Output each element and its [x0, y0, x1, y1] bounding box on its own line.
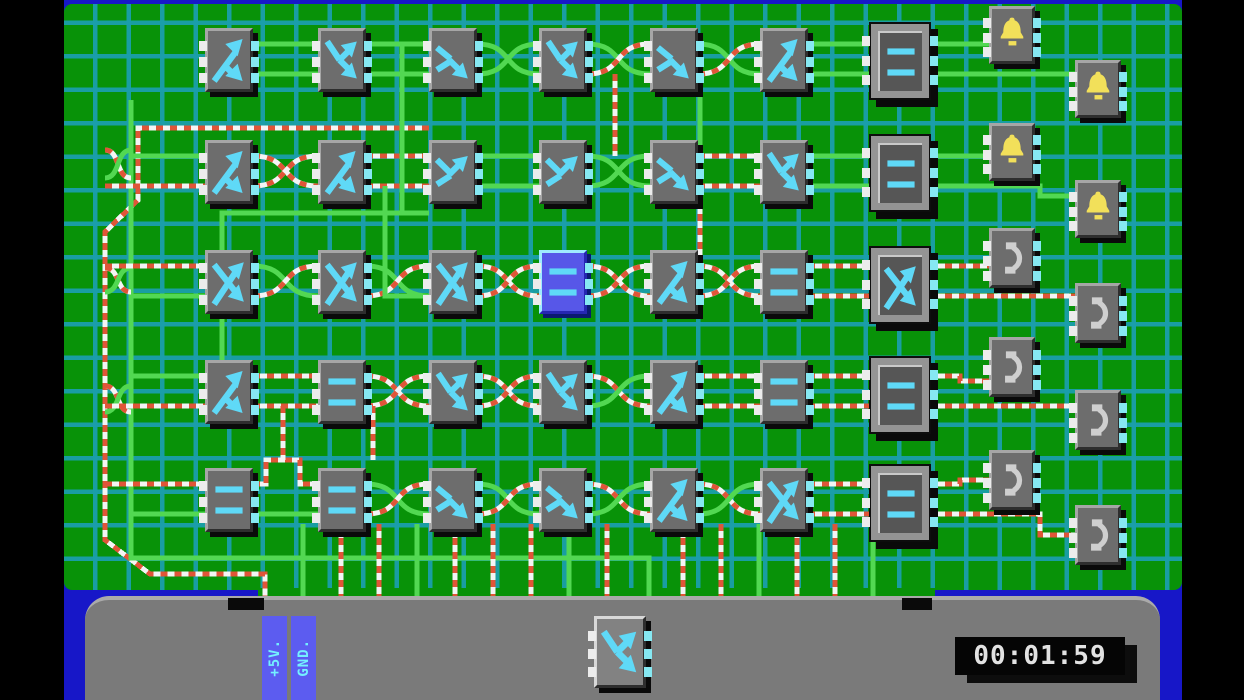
chip-pin-left	[644, 153, 652, 163]
chip-pin-right	[930, 187, 938, 197]
chip-pin-left	[862, 280, 870, 290]
chip-pin-right	[251, 405, 259, 415]
logic-chip[interactable]	[539, 140, 587, 204]
chip-pin-left	[644, 169, 652, 179]
chip-pin-left	[423, 279, 431, 289]
chip-pin-left	[533, 513, 541, 523]
merge-down-icon	[432, 31, 474, 89]
chip-pin-left	[862, 498, 870, 508]
chip-pin-left	[588, 631, 596, 641]
capacitor-chip[interactable]	[760, 360, 808, 424]
chip-pin-left	[1069, 326, 1077, 336]
capacitor-icon	[880, 367, 922, 425]
chip-pin-right	[806, 389, 814, 399]
chip-pin-left	[312, 295, 320, 305]
chip-pin-right	[930, 498, 938, 508]
chip-pin-left	[533, 497, 541, 507]
cross-over-icon	[208, 253, 250, 311]
chip-pin-left	[312, 279, 320, 289]
chip-pin-left	[423, 481, 431, 491]
chip-pin-right	[364, 153, 372, 163]
chip-pin-right	[475, 153, 483, 163]
chip-pin-right	[930, 517, 938, 527]
chip-pin-right	[1119, 207, 1127, 217]
chip-pin-left	[533, 41, 541, 51]
chip-pin-left	[423, 373, 431, 383]
chip-pin-left	[312, 169, 320, 179]
chip-pin-right	[251, 497, 259, 507]
chip-pin-left	[199, 185, 207, 195]
phone-chip[interactable]	[1075, 505, 1121, 565]
logic-chip[interactable]	[760, 468, 808, 532]
chip-pin-left	[754, 57, 762, 67]
chip-pin-left	[312, 41, 320, 51]
chip-pin-right	[585, 41, 593, 51]
chip-pin-right	[585, 73, 593, 83]
timer-value: 00:01:59	[973, 641, 1106, 671]
chip-pin-left	[423, 169, 431, 179]
chip-pin-left	[862, 148, 870, 158]
chip-pin-right	[696, 481, 704, 491]
chip-pin-left	[533, 405, 541, 415]
chip-pin-right	[475, 279, 483, 289]
chip-pin-left	[199, 373, 207, 383]
capacitor-icon	[321, 471, 363, 529]
capacitor-chip-large[interactable]	[869, 356, 931, 434]
chip-pin-left	[983, 493, 991, 503]
chip-pin-right	[806, 169, 814, 179]
chip-pin-right	[806, 185, 814, 195]
chip-pin-right	[930, 260, 938, 270]
chip-pin-right	[251, 513, 259, 523]
chip-pin-right	[644, 649, 652, 659]
chip-pin-left	[423, 153, 431, 163]
logic-chip[interactable]	[650, 250, 698, 314]
chip-pin-left	[862, 517, 870, 527]
chip-pin-right	[364, 373, 372, 383]
chip-pin-right	[696, 57, 704, 67]
bell-icon	[992, 126, 1032, 178]
chip-pin-right	[364, 279, 372, 289]
chip-pin-left	[199, 481, 207, 491]
chip-pin-right	[585, 497, 593, 507]
chip-pin-right	[364, 405, 372, 415]
chip-pin-right	[930, 299, 938, 309]
chip-pin-right	[1033, 478, 1041, 488]
chip-pin-left	[1069, 403, 1077, 413]
chip-pin-right	[1033, 164, 1041, 174]
chip-pin-right	[1119, 548, 1127, 558]
chip-pin-left	[1069, 418, 1077, 428]
chip-pin-left	[423, 57, 431, 67]
splitter-up-icon	[763, 31, 805, 89]
chip-pin-left	[1069, 548, 1077, 558]
chip-pin-left	[199, 279, 207, 289]
chip-pin-right	[251, 263, 259, 273]
logic-chip[interactable]	[429, 28, 477, 92]
chip-pin-left	[644, 513, 652, 523]
chip-pin-right	[1033, 463, 1041, 473]
chip-pin-right	[1033, 241, 1041, 251]
chip-pin-left	[423, 513, 431, 523]
bell-chip[interactable]	[989, 6, 1035, 64]
chip-pin-right	[585, 153, 593, 163]
chip-pin-left	[1069, 72, 1077, 82]
logic-chip[interactable]	[539, 360, 587, 424]
chip-pin-right	[364, 513, 372, 523]
splitter-down-icon	[542, 363, 584, 421]
timer-display: 00:01:59	[955, 637, 1125, 675]
splitter-down-icon	[597, 619, 643, 685]
chip-pin-right	[806, 513, 814, 523]
chip-pin-left	[533, 169, 541, 179]
chip-pin-right	[696, 295, 704, 305]
capacitor-icon	[321, 363, 363, 421]
chip-pin-right	[696, 153, 704, 163]
logic-chip[interactable]	[429, 250, 477, 314]
chip-pin-left	[533, 481, 541, 491]
chip-pin-left	[199, 263, 207, 273]
chip-pin-left	[199, 295, 207, 305]
capacitor-icon	[763, 253, 805, 311]
phone-chip[interactable]	[989, 337, 1035, 397]
chip-pin-right	[930, 56, 938, 66]
chip-pin-left	[588, 667, 596, 677]
chip-pin-left	[754, 373, 762, 383]
chip-pin-left	[644, 389, 652, 399]
capacitor-chip[interactable]	[205, 468, 253, 532]
chip-pin-right	[806, 295, 814, 305]
chip-pin-right	[1119, 418, 1127, 428]
chip-pin-right	[1033, 33, 1041, 43]
splitter-down-icon	[763, 143, 805, 201]
capacitor-chip[interactable]	[318, 468, 366, 532]
chip-pin-left	[754, 513, 762, 523]
phone-icon	[992, 340, 1032, 394]
chip-pin-right	[364, 41, 372, 51]
chip-pin-left	[862, 299, 870, 309]
chip-pin-left	[533, 263, 541, 273]
logic-chip[interactable]	[650, 360, 698, 424]
capacitor-icon	[208, 471, 250, 529]
chip-pin-left	[199, 497, 207, 507]
logic-chip[interactable]	[205, 140, 253, 204]
capacitor-chip[interactable]	[760, 250, 808, 314]
chip-pin-left	[754, 405, 762, 415]
chip-pin-right	[1033, 47, 1041, 57]
chip-inner-panel	[878, 31, 922, 91]
chip-pin-right	[475, 73, 483, 83]
capacitor-chip-large[interactable]	[869, 464, 931, 542]
chip-pin-left	[423, 389, 431, 399]
chip-pin-left	[423, 73, 431, 83]
chip-pin-right	[364, 295, 372, 305]
chip-pin-right	[806, 481, 814, 491]
chip-pin-left	[862, 75, 870, 85]
chip-pin-left	[1069, 207, 1077, 217]
chip-pin-right	[806, 263, 814, 273]
chip-pin-left	[312, 185, 320, 195]
chip-pin-left	[312, 497, 320, 507]
logic-chip[interactable]	[429, 468, 477, 532]
chip-pin-right	[364, 73, 372, 83]
chip-pin-right	[930, 75, 938, 85]
bell-chip[interactable]	[1075, 60, 1121, 118]
cross-over-chip-large[interactable]	[869, 246, 931, 324]
chip-pin-right	[251, 389, 259, 399]
chip-pin-right	[251, 169, 259, 179]
phone-icon	[1078, 393, 1118, 447]
chip-pin-left	[983, 18, 991, 28]
chip-pin-left	[1069, 296, 1077, 306]
game-screen: +5V. GND. 00:01:59	[0, 0, 1244, 700]
chip-pin-left	[862, 187, 870, 197]
chip-pin-left	[754, 279, 762, 289]
merge-up-icon	[542, 143, 584, 201]
chip-pin-right	[930, 390, 938, 400]
chip-pin-right	[696, 263, 704, 273]
merge-up-icon	[432, 143, 474, 201]
chip-pin-left	[644, 295, 652, 305]
chip-pin-right	[364, 57, 372, 67]
chip-pin-right	[696, 513, 704, 523]
chip-pin-left	[312, 373, 320, 383]
chip-pin-right	[1119, 296, 1127, 306]
chip-pin-right	[696, 73, 704, 83]
chip-pin-left	[199, 405, 207, 415]
chip-pin-right	[1119, 326, 1127, 336]
chip-pin-right	[1033, 150, 1041, 160]
phone-icon	[992, 231, 1032, 285]
logic-chip[interactable]	[429, 140, 477, 204]
chip-pin-left	[644, 373, 652, 383]
chip-pin-left	[754, 389, 762, 399]
logic-chip[interactable]	[429, 360, 477, 424]
chip-pin-left	[1069, 87, 1077, 97]
chip-pin-left	[533, 279, 541, 289]
next-chip[interactable]	[594, 616, 646, 688]
bell-chip[interactable]	[1075, 180, 1121, 238]
chip-pin-right	[1033, 271, 1041, 281]
chip-pin-left	[754, 73, 762, 83]
logic-chip[interactable]	[650, 28, 698, 92]
cross-over-icon	[432, 253, 474, 311]
chip-pin-left	[312, 153, 320, 163]
chip-pin-right	[475, 497, 483, 507]
splitter-up-icon	[653, 471, 695, 529]
chip-pin-left	[862, 36, 870, 46]
capacitor-icon	[880, 33, 922, 91]
logic-chip[interactable]	[650, 468, 698, 532]
logic-chip[interactable]	[205, 250, 253, 314]
capacitor-chip-large[interactable]	[869, 134, 931, 212]
chip-pin-left	[533, 389, 541, 399]
chip-pin-left	[862, 409, 870, 419]
logic-chip[interactable]	[318, 140, 366, 204]
phone-icon	[992, 453, 1032, 507]
cross-over-icon	[880, 257, 922, 315]
capacitor-chip[interactable]	[318, 360, 366, 424]
chip-pin-left	[533, 185, 541, 195]
bell-chip[interactable]	[989, 123, 1035, 181]
chip-pin-right	[1119, 433, 1127, 443]
capacitor-chip-large[interactable]	[869, 22, 931, 100]
chip-pin-left	[199, 169, 207, 179]
bell-icon	[1078, 183, 1118, 235]
chip-pin-right	[930, 409, 938, 419]
chip-pin-right	[251, 279, 259, 289]
chip-pin-left	[983, 271, 991, 281]
logic-chip[interactable]	[760, 28, 808, 92]
chip-pin-left	[983, 135, 991, 145]
power-rail-gnd-label: GND.	[296, 639, 312, 677]
chip-pin-right	[364, 481, 372, 491]
chip-pin-right	[364, 497, 372, 507]
chip-inner-panel	[878, 473, 922, 533]
chip-inner-panel	[878, 255, 922, 315]
chip-pin-left	[644, 57, 652, 67]
chip-pin-right	[475, 41, 483, 51]
chip-pin-right	[1119, 192, 1127, 202]
chip-pin-right	[696, 41, 704, 51]
tray-notch-right	[902, 598, 932, 610]
chip-pin-left	[754, 41, 762, 51]
chip-pin-right	[1033, 380, 1041, 390]
chip-pin-left	[199, 389, 207, 399]
selected-chip[interactable]	[539, 250, 587, 314]
chip-pin-right	[251, 153, 259, 163]
chip-pin-left	[983, 33, 991, 43]
chip-pin-left	[644, 73, 652, 83]
chip-pin-right	[1119, 533, 1127, 543]
chip-pin-left	[862, 168, 870, 178]
phone-chip[interactable]	[989, 228, 1035, 288]
chip-pin-right	[585, 169, 593, 179]
chip-pin-right	[930, 370, 938, 380]
power-rail-5v: +5V.	[262, 616, 287, 700]
power-rail-gnd: GND.	[291, 616, 316, 700]
chip-pin-right	[585, 295, 593, 305]
chip-pin-right	[585, 389, 593, 399]
chip-pin-left	[983, 150, 991, 160]
chip-pin-left	[1069, 101, 1077, 111]
chip-pin-left	[423, 405, 431, 415]
chip-pin-right	[696, 169, 704, 179]
phone-chip[interactable]	[1075, 283, 1121, 343]
chip-pin-right	[585, 481, 593, 491]
chip-pin-left	[983, 478, 991, 488]
logic-chip[interactable]	[205, 28, 253, 92]
chip-pin-right	[1119, 311, 1127, 321]
chip-pin-right	[585, 513, 593, 523]
chip-pin-right	[1033, 256, 1041, 266]
chip-pin-left	[199, 153, 207, 163]
chip-pin-left	[423, 185, 431, 195]
chip-pin-right	[251, 373, 259, 383]
chip-pin-right	[696, 279, 704, 289]
chip-pin-right	[696, 497, 704, 507]
logic-chip[interactable]	[539, 28, 587, 92]
chip-pin-left	[533, 73, 541, 83]
chip-pin-left	[312, 389, 320, 399]
chip-pin-left	[754, 153, 762, 163]
chip-pin-left	[312, 73, 320, 83]
phone-chip[interactable]	[989, 450, 1035, 510]
chip-pin-left	[588, 649, 596, 659]
chip-pin-right	[644, 667, 652, 677]
chip-pin-left	[862, 260, 870, 270]
chip-pin-right	[806, 153, 814, 163]
chip-pin-right	[644, 631, 652, 641]
splitter-up-icon	[208, 31, 250, 89]
chip-pin-left	[754, 263, 762, 273]
chip-pin-left	[533, 373, 541, 383]
chip-pin-left	[644, 185, 652, 195]
chip-pin-right	[806, 57, 814, 67]
chip-pin-right	[806, 497, 814, 507]
chip-pin-right	[585, 279, 593, 289]
logic-chip[interactable]	[760, 140, 808, 204]
chip-inner-panel	[878, 365, 922, 425]
chip-inner-panel	[878, 143, 922, 203]
chip-pin-left	[1069, 518, 1077, 528]
chip-pin-right	[475, 263, 483, 273]
splitter-up-icon	[653, 363, 695, 421]
chip-pin-right	[1033, 365, 1041, 375]
chip-pin-right	[806, 41, 814, 51]
chip-pin-right	[696, 185, 704, 195]
logic-chip[interactable]	[650, 140, 698, 204]
chip-pin-right	[475, 481, 483, 491]
chip-pin-right	[475, 373, 483, 383]
capacitor-icon	[542, 253, 584, 311]
logic-chip[interactable]	[539, 468, 587, 532]
chip-pin-left	[423, 41, 431, 51]
splitter-down-icon	[321, 31, 363, 89]
chip-pin-left	[1069, 533, 1077, 543]
splitter-down-icon	[432, 363, 474, 421]
chip-pin-left	[312, 513, 320, 523]
logic-chip[interactable]	[205, 360, 253, 424]
phone-icon	[1078, 286, 1118, 340]
chip-pin-right	[1033, 493, 1041, 503]
capacitor-icon	[880, 475, 922, 533]
chip-pin-right	[475, 169, 483, 179]
chip-pin-left	[754, 481, 762, 491]
chip-pin-left	[983, 164, 991, 174]
chip-pin-right	[696, 373, 704, 383]
logic-chip[interactable]	[318, 250, 366, 314]
chip-pin-right	[585, 263, 593, 273]
chip-pin-right	[364, 169, 372, 179]
chip-pin-left	[312, 481, 320, 491]
chip-pin-right	[806, 279, 814, 289]
chip-pin-left	[983, 256, 991, 266]
chip-pin-right	[475, 405, 483, 415]
chip-pin-left	[983, 350, 991, 360]
chip-pin-left	[423, 263, 431, 273]
chip-pin-left	[862, 478, 870, 488]
splitter-up-icon	[208, 143, 250, 201]
chip-pin-right	[1119, 221, 1127, 231]
chip-pin-left	[312, 405, 320, 415]
chip-pin-right	[251, 73, 259, 83]
chip-pin-left	[423, 497, 431, 507]
phone-chip[interactable]	[1075, 390, 1121, 450]
chip-pin-right	[475, 57, 483, 67]
splitter-up-icon	[653, 253, 695, 311]
logic-chip[interactable]	[318, 28, 366, 92]
